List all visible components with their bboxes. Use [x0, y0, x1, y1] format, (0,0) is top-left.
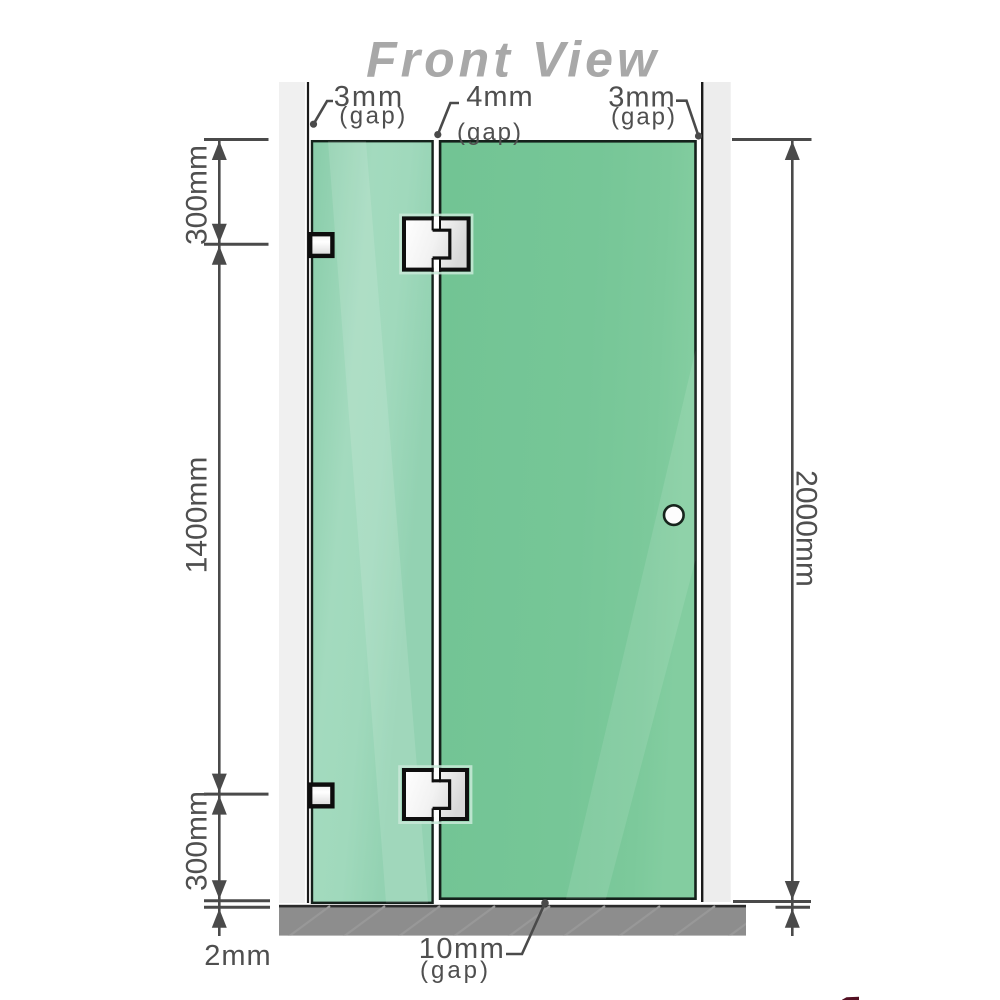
svg-text:(gap): (gap) — [457, 119, 523, 146]
svg-text:(gap): (gap) — [611, 104, 677, 131]
svg-text:Front View: Front View — [366, 31, 660, 87]
svg-text:(gap): (gap) — [339, 103, 408, 130]
svg-text:300mm: 300mm — [181, 791, 214, 891]
svg-text:300mm: 300mm — [181, 145, 214, 245]
svg-text:2mm: 2mm — [204, 940, 271, 972]
svg-text:(gap): (gap) — [420, 957, 491, 984]
svg-text:4mm: 4mm — [466, 81, 533, 113]
svg-text:1400mm: 1400mm — [181, 457, 214, 574]
svg-text:2000mm: 2000mm — [790, 470, 823, 587]
